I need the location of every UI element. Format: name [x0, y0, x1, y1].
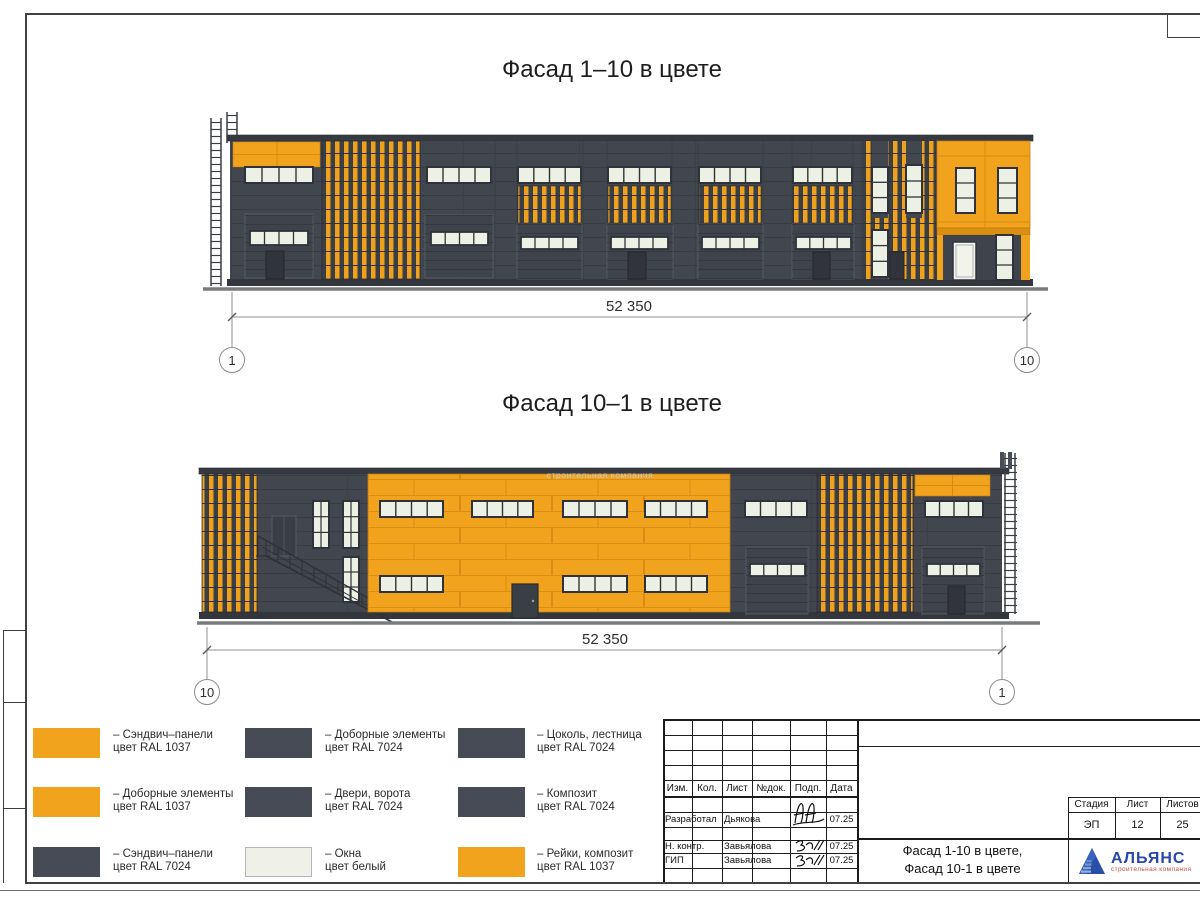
rev-header-podp: Подп. — [790, 780, 826, 796]
company-watermark: строительная компания — [547, 470, 654, 480]
sheets-label: Листов — [1160, 797, 1200, 812]
legend-label: – Окнацвет белый — [325, 848, 386, 874]
legend-swatch-trim-1037 — [33, 787, 100, 817]
legend-label: – Доборные элементыцвет RAL 1037 — [113, 788, 233, 814]
logo-name: АЛЬЯНС — [1111, 851, 1191, 866]
axis-bubble-1-top: 1 — [219, 347, 245, 373]
bay-d — [517, 167, 582, 279]
stamp-role-gip: ГИП — [665, 853, 721, 868]
rev-header-kol: Кол. — [692, 780, 722, 796]
stage-value: ЭП — [1068, 812, 1115, 838]
orange-slats-bay-left — [202, 474, 257, 612]
left-attribute-divider-2 — [3, 702, 26, 703]
facade-1-10-drawing — [190, 105, 1060, 375]
stage-label: Стадия — [1068, 797, 1115, 812]
legend-label: – Цоколь, лестницацвет RAL 7024 — [537, 729, 642, 755]
rev-header-data: Дата — [826, 780, 857, 796]
drawing-sheet: Фасад 1–10 в цвете Фасад 10–1 в цвете — [0, 0, 1200, 900]
stamp-doc-title: Фасад 1-10 в цвете,Фасад 10-1 в цвете — [857, 838, 1068, 882]
rev-header-izm: Изм. — [663, 780, 692, 796]
bay-g — [698, 167, 763, 279]
legend-label: – Рейки, композитцвет RAL 1037 — [537, 848, 633, 874]
legend-label: – Композитцвет RAL 7024 — [537, 788, 615, 814]
legend-swatch-sandwich-7024 — [33, 847, 100, 877]
frame-top-line — [25, 13, 1200, 15]
title-block: Изм. Кол. Лист №док. Подп. Дата Разработ… — [663, 719, 1200, 882]
stamp-date-developer: 07.25 — [826, 812, 857, 827]
left-attribute-column-line — [3, 630, 4, 883]
stamp-name-ncontrol: Завьялова — [724, 840, 788, 853]
left-attribute-divider-1 — [3, 630, 26, 631]
legend-label: – Сэндвич–панелицвет RAL 7024 — [113, 848, 213, 874]
facade-10-1-drawing — [185, 440, 1085, 710]
orange-slats-bay-mid — [817, 474, 913, 612]
sheet-label: Лист — [1115, 797, 1160, 812]
stamp-name-gip: Завьялова — [724, 853, 788, 868]
alliance-pyramid-icon — [1078, 847, 1106, 877]
axis-bubble-1-bottom: 1 — [989, 679, 1015, 705]
axis-bubble-10-top: 10 — [1014, 347, 1040, 373]
signature-zavyalova-2 — [793, 853, 825, 868]
dimension-value-bottom: 52 350 — [582, 631, 628, 648]
legend-swatch-sandwich-1037 — [33, 728, 100, 758]
signature-dyakova — [791, 799, 825, 827]
bay-e — [607, 167, 673, 279]
sheet-trim-line — [0, 890, 1200, 891]
legend-label: – Сэндвич–панелицвет RAL 1037 — [113, 729, 213, 755]
stamp-role-ncontrol: Н. контр. — [665, 840, 721, 853]
stamp-role-developer: Разработал — [665, 812, 721, 827]
signature-zavyalova-1 — [793, 838, 825, 853]
frame-bottom-line — [25, 882, 1200, 884]
orange-corner-block — [937, 141, 1030, 280]
top-right-reference-box — [1167, 15, 1200, 38]
company-logo: АЛЬЯНС строительная компания — [1078, 844, 1200, 880]
legend-label: – Двери, воротацвет RAL 7024 — [325, 788, 410, 814]
legend-label: – Доборные элементыцвет RAL 7024 — [325, 729, 445, 755]
axis-bubble-10-bottom: 10 — [194, 679, 220, 705]
frame-left-line — [25, 13, 27, 884]
facade-1-10-title: Фасад 1–10 в цвете — [502, 56, 722, 84]
logo-subtitle: строительная компания — [1111, 866, 1191, 873]
stamp-name-developer: Дьякова — [724, 812, 788, 827]
orange-field — [368, 474, 730, 618]
legend-swatch-composite-7024 — [458, 787, 525, 817]
legend-swatch-plinth-7024 — [458, 728, 525, 758]
facade-10-1-title: Фасад 10–1 в цвете — [502, 390, 722, 418]
stamp-date-ncontrol: 07.25 — [826, 840, 857, 853]
sheet-value: 12 — [1115, 812, 1160, 838]
legend-swatch-windows-white — [245, 847, 312, 877]
orange-slats-bay — [322, 141, 420, 279]
rev-header-ndok: №док. — [752, 780, 790, 796]
sheets-value: 25 — [1160, 812, 1200, 838]
bay-c — [425, 167, 493, 278]
dimension-value-top: 52 350 — [606, 298, 652, 315]
stamp-date-gip: 07.25 — [826, 853, 857, 868]
gate-bay-2 — [745, 501, 808, 614]
legend-swatch-slats-1037 — [458, 847, 525, 877]
left-attribute-divider-3 — [3, 808, 26, 809]
rev-header-list: Лист — [722, 780, 752, 796]
legend-swatch-trim-7024 — [245, 728, 312, 758]
roof-ladder-right — [1000, 452, 1017, 614]
bay-h — [792, 167, 854, 279]
legend-swatch-doors-7024 — [245, 787, 312, 817]
